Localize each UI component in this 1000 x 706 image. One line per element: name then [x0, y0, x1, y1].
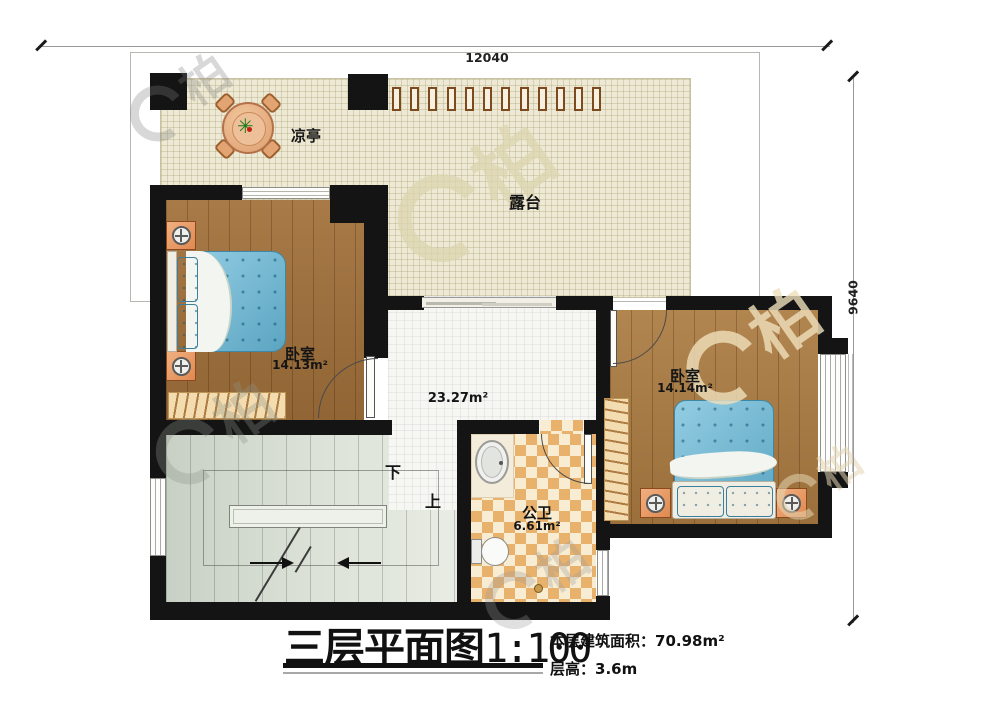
wall	[818, 472, 848, 488]
dimension-line-right	[853, 78, 854, 623]
lamp-icon	[646, 494, 665, 513]
bed-headboard	[167, 251, 177, 352]
floor-height-note: 层高：3.6m	[550, 658, 637, 679]
terrace-sliding-door	[422, 297, 556, 308]
dimension-top-label: 12040	[455, 50, 519, 65]
floor-height-value: 3.6m	[595, 660, 637, 678]
wall	[150, 420, 392, 435]
pavilion-label: 凉亭	[276, 125, 336, 146]
hallway-floor	[388, 296, 596, 430]
dimension-right-label: 9640	[846, 271, 861, 325]
railing-post	[392, 87, 401, 111]
railing-post	[410, 87, 419, 111]
bedside-rug	[168, 392, 286, 419]
stair-center-rail	[229, 505, 387, 528]
lamp-icon	[782, 494, 801, 513]
bed-pillow	[726, 486, 773, 517]
stairwell-window	[150, 478, 166, 556]
bed-pillow	[177, 257, 198, 302]
floor-area-label: 本层建筑面积：	[550, 632, 655, 650]
terrace-label: 露台	[495, 189, 555, 213]
railing-post	[501, 87, 510, 111]
railing-post	[465, 87, 474, 111]
bed-pillow	[177, 304, 198, 349]
title-underline	[283, 663, 543, 668]
wall	[150, 556, 166, 602]
bathroom-area: 6.61m²	[499, 519, 575, 533]
wall	[348, 74, 388, 110]
bedroom-right-window	[820, 354, 846, 472]
floor-height-label: 层高：	[550, 660, 595, 678]
floor-area-note: 本层建筑面积：70.98m²	[550, 630, 725, 651]
bedside-rug	[604, 398, 629, 521]
stair-direction-line	[349, 562, 381, 564]
wall	[818, 338, 848, 354]
pavilion-table: ✳	[222, 102, 274, 154]
stair-arrow-left-icon	[337, 557, 349, 569]
wall	[388, 296, 424, 310]
bathroom-window	[597, 550, 609, 596]
railing-post	[574, 87, 583, 111]
nightstand	[166, 351, 196, 381]
nightstand	[776, 488, 807, 518]
floor-drain-icon	[534, 584, 543, 593]
plant-icon: ✳	[237, 114, 254, 138]
dimension-line-top	[40, 46, 830, 47]
railing-post	[483, 87, 492, 111]
wall	[150, 73, 187, 110]
floor-area-value: 70.98m²	[655, 632, 725, 650]
bathroom-floor-doorway	[540, 420, 583, 434]
bed-pillow	[677, 486, 724, 517]
sink	[475, 440, 509, 484]
wall	[666, 296, 832, 310]
title-underline-thin	[283, 672, 543, 674]
railing-post	[556, 87, 565, 111]
wall	[457, 420, 471, 602]
wall	[150, 185, 242, 200]
wall	[596, 538, 610, 550]
wall	[364, 185, 388, 358]
wall	[556, 296, 613, 310]
bedroom-left-terrace-window	[242, 187, 330, 199]
stair-arrow-right-icon	[282, 557, 294, 569]
railing-post	[592, 87, 601, 111]
nightstand	[640, 488, 671, 518]
railing-post	[520, 87, 529, 111]
railing-post	[538, 87, 547, 111]
nightstand	[166, 221, 196, 250]
wall	[596, 524, 832, 538]
lamp-icon	[172, 357, 191, 376]
railing-post	[447, 87, 456, 111]
stairs-up-label: 上	[422, 488, 444, 512]
hallway-area: 23.27m²	[420, 391, 496, 406]
lamp-icon	[172, 226, 191, 245]
bedroom-left-area: 14.13m²	[262, 358, 338, 372]
wall	[471, 420, 539, 434]
stair-direction-line	[250, 562, 282, 564]
stairs-down-label: 下	[382, 459, 404, 483]
railing-post	[428, 87, 437, 111]
toilet	[471, 537, 509, 567]
floor-plan-canvas: ✳ 柏 柏 柏 柏	[0, 0, 1000, 706]
bedroom-right-area: 14.14m²	[647, 381, 723, 395]
